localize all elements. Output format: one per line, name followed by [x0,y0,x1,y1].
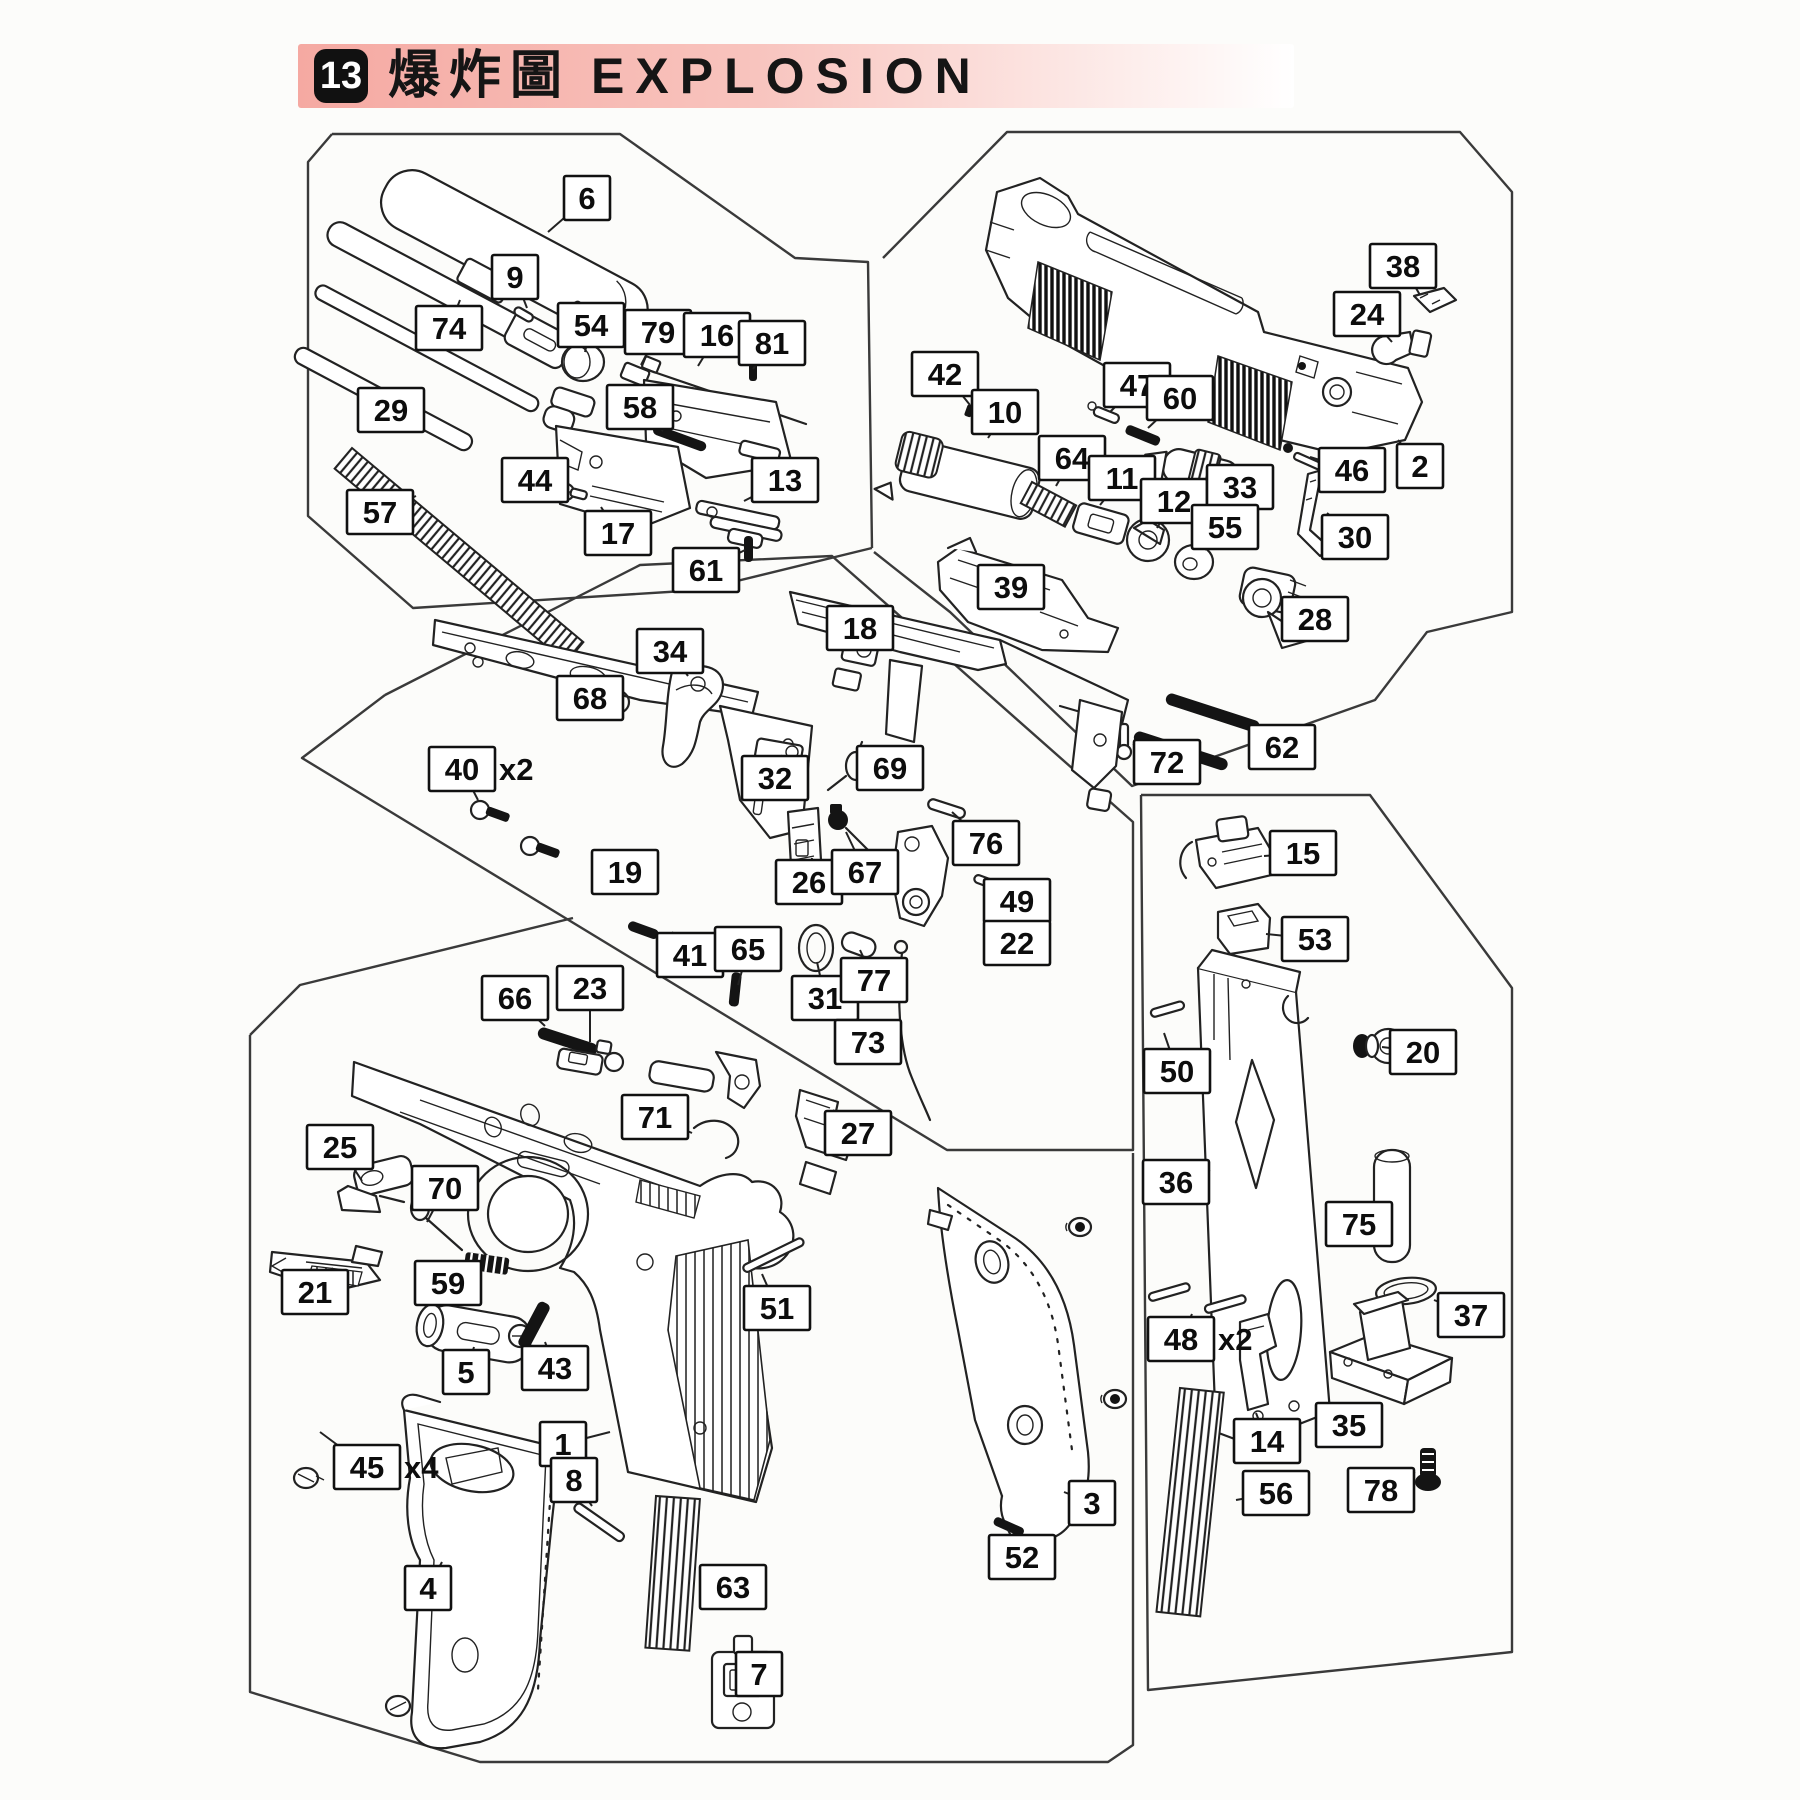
pin-50-drawing [1150,1001,1185,1018]
svg-text:28: 28 [1298,602,1332,637]
svg-text:58: 58 [623,390,657,425]
part-label-38: 38 [1370,244,1436,295]
part-label-65: 65 [715,927,781,985]
svg-text:2: 2 [1411,449,1428,484]
part-label-10: 10 [972,390,1038,438]
svg-text:76: 76 [969,826,1003,861]
mag-spring-56-drawing [1156,1388,1223,1616]
part-label-77: 77 [841,950,907,1002]
pin-41-drawing [627,920,660,940]
cup-12-drawing [1127,519,1169,561]
svg-text:75: 75 [1342,1207,1376,1242]
part-label-59: 59 [415,1261,481,1305]
block-53-drawing [1218,904,1270,954]
svg-text:66: 66 [498,981,532,1016]
svg-text:5: 5 [457,1355,474,1390]
part-label-2: 2 [1397,440,1443,488]
svg-text:74: 74 [432,311,467,346]
part-label-61: 61 [673,548,745,592]
svg-text:39: 39 [994,570,1028,605]
svg-text:50: 50 [1160,1054,1194,1089]
svg-text:12: 12 [1157,484,1191,519]
svg-text:29: 29 [374,393,408,428]
svg-text:68: 68 [573,681,607,716]
part-label-71: 71 [622,1095,692,1139]
svg-text:20: 20 [1406,1035,1440,1070]
part-label-20: 20 [1382,1030,1456,1074]
latch-13-drawing [695,500,782,549]
diagram-svg: 6974547916812958441357176138244210476064… [0,0,1800,1800]
svg-text:64: 64 [1055,441,1090,476]
part-label-57: 57 [347,490,416,534]
part-label-3: 3 [1064,1481,1115,1525]
part-label-24: 24 [1334,292,1400,342]
part-label-8: 8 [551,1458,597,1506]
svg-text:72: 72 [1150,745,1184,780]
svg-text:67: 67 [848,855,882,890]
rail-19-drawing [433,620,812,838]
svg-text:70: 70 [428,1171,462,1206]
part-label-19: 19 [592,850,658,894]
part-label-49: 49 [984,879,1050,923]
mag-base-35-drawing [1330,1292,1452,1404]
svg-text:x2: x2 [499,752,533,787]
part-label-22: 22 [984,921,1050,965]
svg-text:60: 60 [1163,381,1197,416]
part-label-78: 78 [1348,1468,1415,1512]
piston-11-drawing [1072,502,1130,545]
part-label-72: 72 [1133,740,1200,784]
svg-text:38: 38 [1386,249,1420,284]
svg-text:x2: x2 [1218,1322,1252,1357]
part-label-66: 66 [482,976,548,1026]
bushing-ring-drawing [562,343,604,381]
svg-text:30: 30 [1338,520,1372,555]
svg-text:54: 54 [574,308,609,343]
svg-text:73: 73 [851,1025,885,1060]
part-label-43: 43 [522,1342,588,1390]
svg-text:32: 32 [758,761,792,796]
part-label-30: 30 [1322,513,1388,559]
svg-text:71: 71 [638,1100,672,1135]
svg-text:42: 42 [928,357,962,392]
svg-text:36: 36 [1159,1165,1193,1200]
part-label-69: 69 [857,746,923,790]
svg-text:34: 34 [653,634,688,669]
svg-text:81: 81 [755,326,789,361]
part-label-68: 68 [557,676,623,720]
part-label-18: 18 [827,606,893,650]
part-label-53: 53 [1266,917,1348,961]
hammer-spring-63-drawing [645,1496,699,1651]
svg-text:27: 27 [841,1116,875,1151]
svg-text:11: 11 [1106,461,1139,496]
rear-sight-drawing [1414,288,1456,312]
part-label-35: 35 [1316,1403,1382,1447]
svg-text:44: 44 [518,463,553,498]
svg-text:8: 8 [565,1463,582,1498]
barrel-link-drawing [541,386,596,434]
part-label-5: 5 [443,1347,489,1394]
part-label-29: 29 [358,388,424,432]
svg-text:15: 15 [1286,836,1320,871]
svg-text:43: 43 [538,1351,572,1386]
ring-31-drawing [799,925,833,971]
svg-text:3: 3 [1083,1486,1100,1521]
part-label-63: 63 [700,1565,766,1609]
svg-text:61: 61 [689,553,723,588]
part-label-41: 41 [657,932,723,977]
svg-text:65: 65 [731,932,765,967]
part-label-13: 13 [744,458,818,502]
part-label-36: 36 [1143,1160,1210,1204]
svg-text:31: 31 [808,981,842,1016]
cylinder-77-drawing [840,930,878,959]
svg-text:22: 22 [1000,926,1034,961]
pin-61-drawing [744,536,753,562]
spring-67-drawing [828,804,870,852]
part-label-7: 7 [736,1652,782,1696]
part-label-28: 28 [1282,597,1348,641]
svg-text:21: 21 [298,1275,332,1310]
spring-wire-71-drawing [694,1121,738,1158]
part-label-67: 67 [832,832,898,894]
svg-text:7: 7 [750,1657,767,1692]
spring-64-drawing [1021,482,1076,527]
svg-text:18: 18 [843,611,877,646]
svg-text:69: 69 [873,751,907,786]
part-label-27: 27 [825,1110,891,1155]
part-label-51: 51 [744,1274,810,1330]
part-label-55: 55 [1192,505,1258,550]
svg-text:13: 13 [768,463,802,498]
svg-text:56: 56 [1259,1476,1293,1511]
svg-text:59: 59 [431,1266,465,1301]
svg-text:49: 49 [1000,884,1034,919]
screws-40-drawing [471,801,561,859]
svg-text:53: 53 [1298,922,1332,957]
part-label-40: 40x2 [429,747,533,800]
part-label-76: 76 [952,812,1019,865]
part-label-33: 33 [1207,465,1273,509]
pin-8-drawing [573,1502,626,1543]
manual-page: 13 爆炸圖 EXPLOSION [0,0,1800,1800]
part-label-44: 44 [502,458,568,502]
svg-text:51: 51 [760,1291,794,1326]
part-label-34: 34 [637,629,703,676]
svg-text:63: 63 [716,1570,750,1605]
svg-text:16: 16 [700,318,734,353]
svg-text:45: 45 [350,1450,384,1485]
svg-text:57: 57 [363,495,397,530]
svg-text:37: 37 [1454,1298,1488,1333]
svg-text:4: 4 [419,1571,437,1606]
part-label-79: 79 [625,310,691,365]
part-label-23: 23 [557,966,623,1042]
svg-text:79: 79 [641,315,675,350]
svg-text:52: 52 [1005,1540,1039,1575]
rod-60-drawing [1124,424,1161,447]
lever-22-drawing [892,826,948,926]
part-label-39: 39 [978,565,1044,609]
nozzle-drawing [873,427,1043,533]
svg-text:33: 33 [1223,470,1257,505]
part-label-32: 32 [742,755,808,800]
svg-text:78: 78 [1364,1473,1398,1508]
svg-text:40: 40 [445,752,479,787]
part-label-48: 48x2 [1148,1314,1252,1361]
svg-text:24: 24 [1350,297,1385,332]
mag-catch-15-drawing [1180,816,1276,888]
svg-text:9: 9 [506,260,523,295]
magazine-body-drawing [1198,950,1330,1444]
svg-text:14: 14 [1250,1424,1285,1459]
part-label-56: 56 [1236,1471,1309,1515]
svg-text:10: 10 [988,395,1022,430]
part-label-81: 81 [739,321,805,369]
part-label-46: 46 [1310,448,1385,492]
svg-text:48: 48 [1164,1322,1198,1357]
part-label-6: 6 [548,176,610,232]
svg-text:46: 46 [1335,453,1369,488]
pin-76-drawing [927,798,966,819]
part-label-60: 60 [1147,376,1213,428]
part-label-9: 9 [492,255,538,308]
svg-text:26: 26 [792,865,826,900]
part-label-75: 75 [1326,1202,1392,1246]
svg-text:19: 19 [608,855,642,890]
svg-text:35: 35 [1332,1408,1366,1443]
svg-text:23: 23 [573,971,607,1006]
part-label-37: 37 [1434,1293,1504,1337]
svg-text:25: 25 [323,1130,357,1165]
part-label-15: 15 [1264,831,1336,875]
part-label-74: 74 [416,300,482,350]
part-label-62: 62 [1249,725,1315,769]
svg-text:41: 41 [673,938,707,973]
part-label-17: 17 [585,507,651,555]
right-grip-drawing [928,1188,1089,1541]
svg-text:77: 77 [857,963,891,998]
part-label-58: 58 [607,385,673,431]
part-label-21: 21 [282,1268,348,1314]
svg-text:17: 17 [601,516,635,551]
internals-group-drawing [433,592,1128,1120]
part-label-54: 54 [558,303,624,352]
svg-text:55: 55 [1208,510,1242,545]
screw-78-drawing [1415,1448,1441,1491]
part-label-42: 42 [912,352,978,405]
svg-text:x4: x4 [404,1450,439,1485]
part-label-73: 73 [835,1020,901,1064]
svg-text:6: 6 [578,181,595,216]
part-label-4: 4 [405,1562,451,1610]
frame-group-drawing [270,1052,1126,1748]
trigger-drawing [662,666,723,767]
part-label-52: 52 [989,1530,1055,1579]
svg-text:62: 62 [1265,730,1299,765]
part-label-14: 14 [1234,1413,1300,1463]
